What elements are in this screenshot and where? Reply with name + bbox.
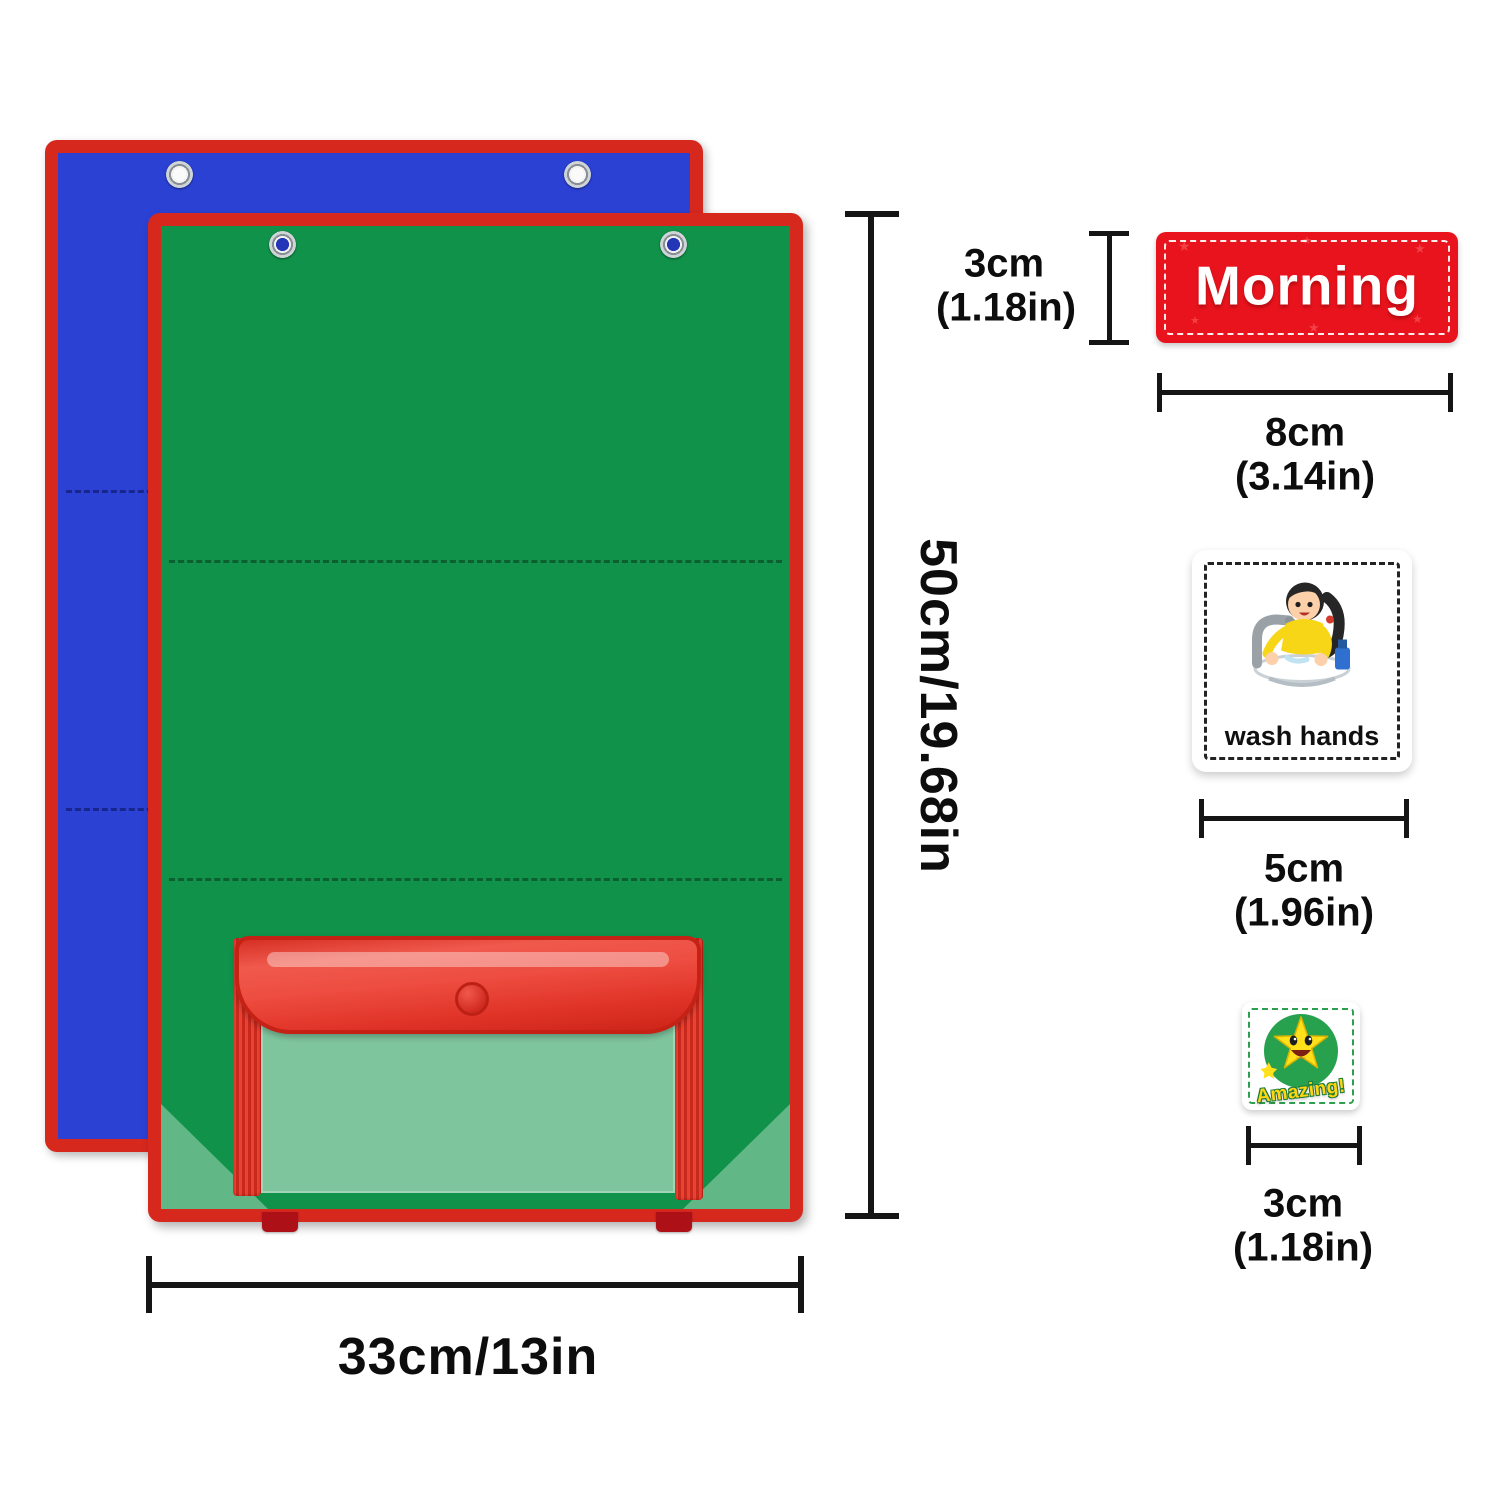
- sticker-label-cm: 3cm: [1263, 1182, 1343, 1227]
- height-dimension-line: [868, 213, 874, 1219]
- fold-seam: [169, 878, 782, 881]
- picture-card-dimension-tick: [1199, 799, 1204, 838]
- card-height-label-cm: 3cm: [964, 242, 1044, 287]
- snap-button: [455, 982, 489, 1016]
- grommet-icon: [564, 161, 591, 188]
- grommet-icon: [660, 231, 687, 258]
- picture-card-dimension-tick: [1404, 799, 1409, 838]
- width-dimension-tick: [146, 1256, 152, 1313]
- hanging-tab: [262, 1212, 298, 1232]
- morning-word-card: Morning: [1156, 232, 1458, 343]
- width-dimension-line: [148, 1282, 804, 1288]
- hanging-tab: [656, 1212, 692, 1232]
- width-dimension-label: 33cm/13in: [338, 1327, 599, 1387]
- grommet-icon: [269, 231, 296, 258]
- wash-hands-picture-card: wash hands: [1192, 550, 1412, 772]
- fold-seam: [169, 560, 782, 563]
- card-height-dimension-tick: [1089, 231, 1129, 236]
- picture-card-label-cm: 5cm: [1264, 847, 1344, 892]
- grommet-icon: [166, 161, 193, 188]
- card-width-label-in: (3.14in): [1235, 455, 1375, 500]
- wash-hands-card-label: wash hands: [1192, 721, 1412, 752]
- clear-pocket-window: [261, 1021, 675, 1193]
- product-dimension-diagram: 50cm/19.68in 33cm/13in 3cm (1.18in) Morn…: [0, 0, 1500, 1500]
- picture-card-dimension-line: [1199, 816, 1409, 821]
- sticker-dimension-tick: [1246, 1126, 1251, 1165]
- height-dimension-tick: [845, 1213, 899, 1219]
- storage-pocket-flap: [235, 936, 701, 1034]
- card-width-dimension-line: [1157, 390, 1453, 395]
- green-pocket-chart: [148, 213, 803, 1222]
- sticker-dimension-tick: [1357, 1126, 1362, 1165]
- sticker-label-in: (1.18in): [1233, 1226, 1373, 1271]
- card-width-dimension-tick: [1157, 373, 1162, 412]
- sticker-dimension-line: [1246, 1143, 1362, 1148]
- card-width-label-cm: 8cm: [1265, 411, 1345, 456]
- wash-hands-illustration: [1217, 566, 1387, 694]
- card-height-dimension-line: [1107, 233, 1112, 343]
- height-dimension-label: 50cm/19.68in: [908, 538, 968, 874]
- morning-card-label: Morning: [1156, 253, 1458, 317]
- flap-highlight: [267, 952, 669, 967]
- card-height-dimension-tick: [1089, 340, 1129, 345]
- width-dimension-tick: [798, 1256, 804, 1313]
- card-width-dimension-tick: [1448, 373, 1453, 412]
- card-height-label-in: (1.18in): [936, 286, 1076, 331]
- amazing-reward-sticker: Amazing!: [1242, 1002, 1360, 1110]
- height-dimension-tick: [845, 211, 899, 217]
- picture-card-label-in: (1.96in): [1234, 891, 1374, 936]
